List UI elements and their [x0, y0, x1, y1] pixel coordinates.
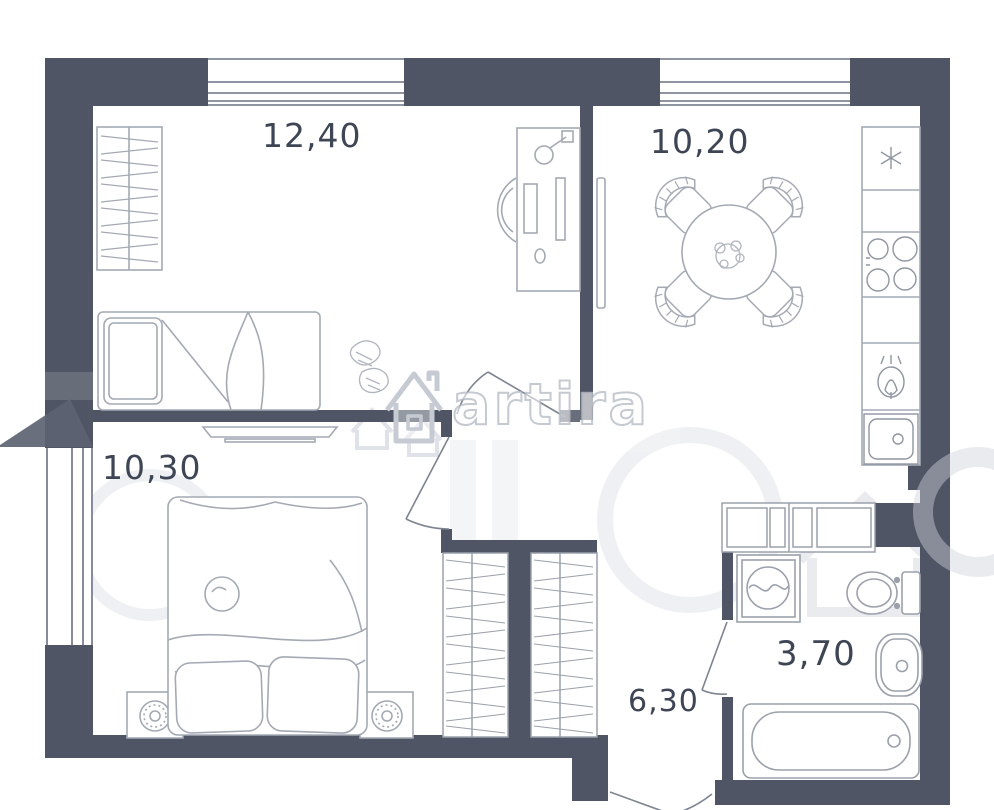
entry-cabinets-icon	[722, 503, 875, 552]
bathtub-icon	[743, 704, 919, 778]
room-area-label: 3,70	[776, 634, 856, 674]
wall	[715, 780, 950, 805]
wall	[572, 735, 608, 801]
door-swing-bathroom	[702, 622, 727, 694]
watermark-light-patch	[45, 372, 93, 400]
watermark-house-icon	[387, 373, 441, 441]
single-bed-icon	[98, 312, 320, 410]
washing-machine-icon	[737, 555, 800, 622]
wardrobe-icon	[97, 127, 162, 270]
window-top-right	[660, 58, 850, 106]
kitchen-counter	[862, 127, 920, 465]
wall	[508, 553, 531, 737]
closet-left-icon	[443, 553, 508, 737]
wall	[441, 540, 597, 553]
closet-right-icon	[531, 553, 597, 737]
floor-plan: 12,40 10,20 10,30 6,30 3,70 artira	[0, 0, 994, 810]
room-area-label: 12,40	[262, 116, 361, 155]
wall	[920, 58, 950, 805]
desk-chair-icon	[498, 178, 516, 242]
window-top-left	[208, 58, 404, 106]
desk-icon	[517, 128, 580, 291]
bathroom-sink-icon	[876, 634, 922, 696]
room-top-furniture	[97, 127, 580, 410]
wall	[722, 697, 733, 782]
room-area-label: 6,30	[628, 684, 699, 719]
wall	[722, 552, 733, 620]
wall	[441, 422, 452, 437]
window-left	[45, 448, 93, 645]
keyboard-icon	[524, 184, 537, 233]
watermark-text: artira	[452, 372, 650, 438]
toilet-icon	[847, 572, 920, 614]
tv-kitchen-icon	[597, 178, 605, 308]
double-bed-icon	[168, 497, 367, 735]
door-swing-entrance	[610, 792, 712, 810]
room-area-label: 10,20	[650, 122, 749, 161]
skates-decor-icon	[350, 341, 388, 393]
monitor-icon	[556, 178, 565, 240]
wall	[404, 58, 660, 106]
wall	[45, 410, 452, 422]
dining-table-icon	[682, 205, 776, 299]
tv-stand-icon	[203, 427, 337, 442]
nightstand-icon	[360, 692, 413, 738]
room-area-label: 10,30	[102, 448, 201, 487]
